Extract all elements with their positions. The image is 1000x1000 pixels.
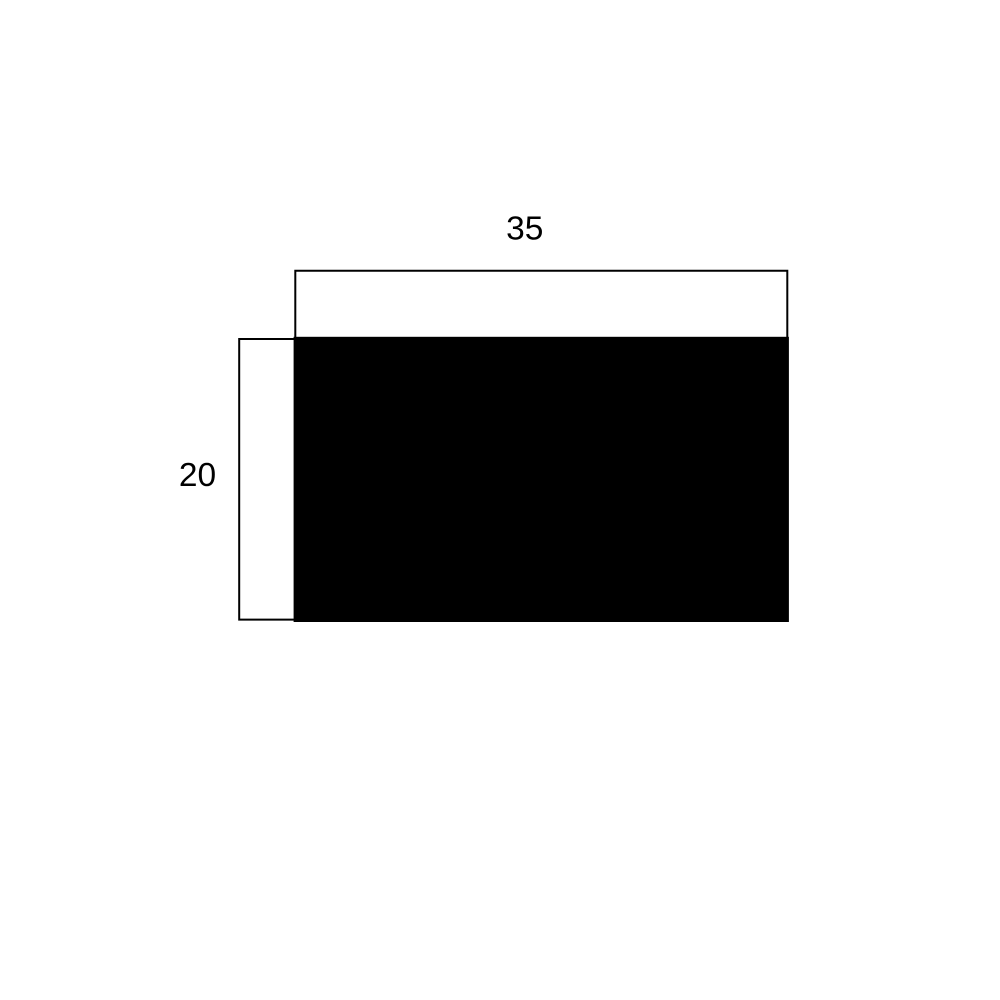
svg-text:20: 20 (179, 457, 216, 494)
svg-text:35: 35 (506, 211, 543, 248)
